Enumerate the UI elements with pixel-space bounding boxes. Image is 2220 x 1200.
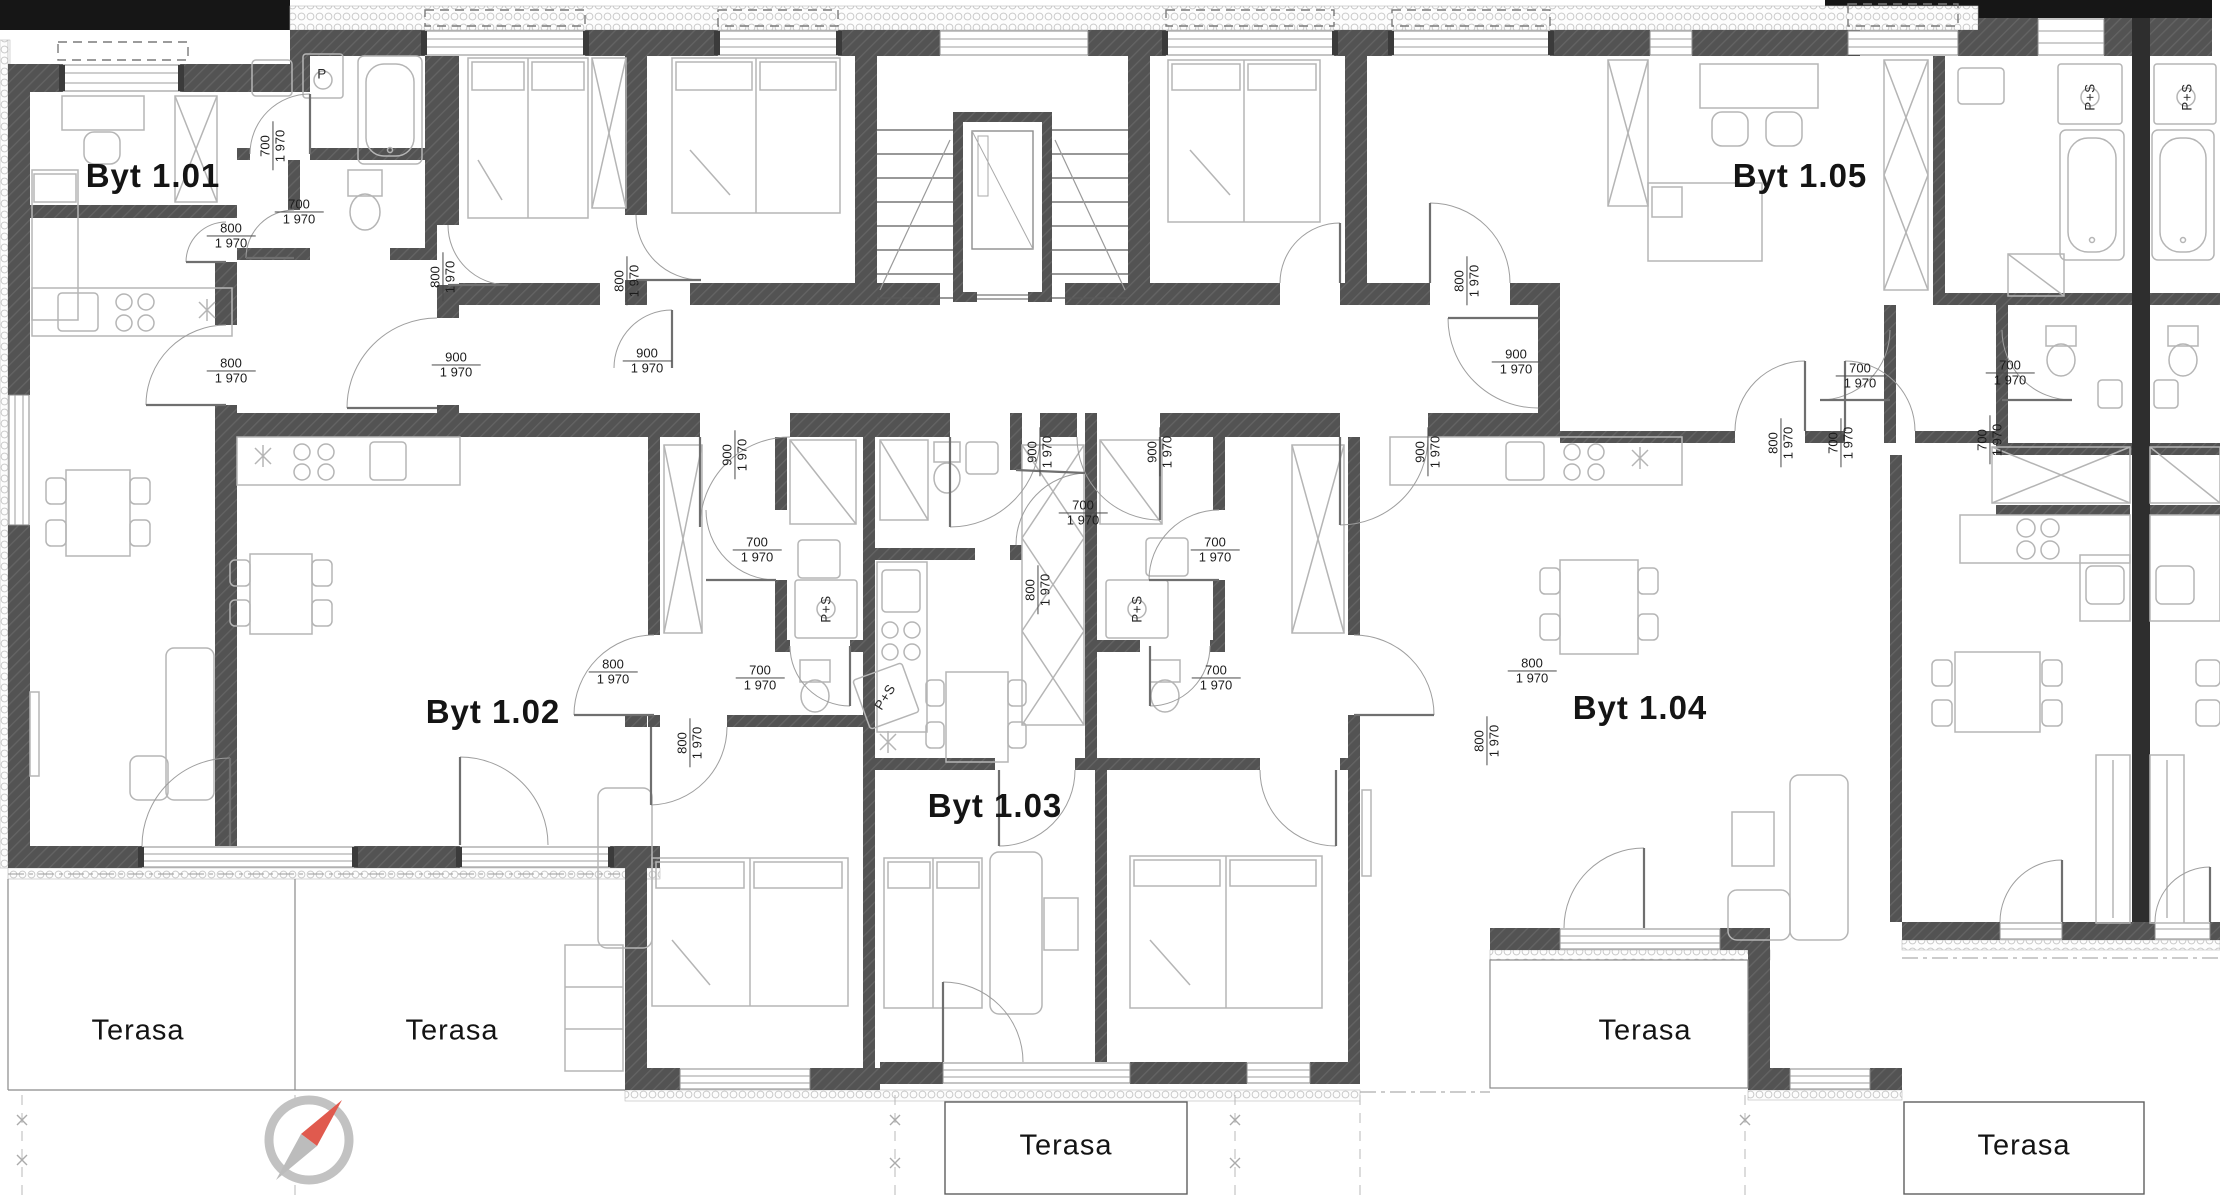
- insulation-layer: [0, 6, 2220, 1101]
- door-dimension-label: 900 1 970: [432, 350, 481, 379]
- coffee-table: [1044, 898, 1078, 950]
- kitchen-sink: [2156, 566, 2194, 604]
- elevator: [953, 112, 1052, 302]
- toilet: [800, 660, 830, 682]
- dining-table: [250, 554, 312, 634]
- office-chair: [1766, 112, 1802, 146]
- sofa: [1790, 775, 1848, 940]
- washbasin: [2098, 380, 2122, 408]
- tv-board: [30, 692, 39, 776]
- terrace-label: Terasa: [1598, 1015, 1691, 1048]
- office-chair: [1712, 112, 1748, 146]
- toilet: [1150, 660, 1180, 682]
- door-dimension-label: 700 1 970: [275, 197, 324, 226]
- desk: [1700, 64, 1818, 108]
- apartment-label: Byt 1.04: [1573, 689, 1708, 727]
- kitchen-sink: [882, 570, 920, 612]
- door-dimension-label: 700 1 970: [736, 663, 785, 692]
- windows: [9, 4, 2210, 1089]
- sofa: [166, 648, 214, 800]
- toilet: [934, 442, 960, 462]
- kitchen-sink: [370, 442, 406, 480]
- washbasin: [2154, 380, 2178, 408]
- door-dimension-label: 700 1 970: [1826, 419, 1855, 468]
- kitchen-sink: [1506, 442, 1544, 480]
- kitchen-counter: [1960, 515, 2130, 563]
- dining-table: [946, 672, 1008, 762]
- door-dimension-label: 800 1 970: [1766, 419, 1795, 468]
- single-bed: [32, 170, 78, 320]
- washbasin: [966, 442, 998, 474]
- door-dimension-label: 700 1 970: [1975, 416, 2004, 465]
- vent-symbol: [199, 299, 215, 321]
- dining-table: [66, 470, 130, 556]
- door-dimension-label: 800 1 970: [1452, 257, 1481, 306]
- door-dimension-label: 900 1 970: [1413, 428, 1442, 477]
- burner: [116, 294, 132, 310]
- dining-table: [1560, 560, 1638, 654]
- appliance-label: P+S: [819, 595, 834, 622]
- appliance-label: P+S: [2180, 83, 2195, 110]
- armchair: [130, 756, 168, 800]
- apartment-label: Byt 1.01: [86, 157, 221, 195]
- washbasin: [798, 540, 840, 578]
- terrace-label: Terasa: [405, 1015, 498, 1048]
- door-dimension-label: 800 1 970: [1472, 717, 1501, 766]
- kitchen-counter: [237, 437, 460, 485]
- door-dimension-label: 700 1 970: [1986, 358, 2035, 387]
- door-dimension-label: 700 1 970: [1191, 535, 1240, 564]
- toilet: [2046, 326, 2076, 346]
- kitchen-counter: [2080, 555, 2130, 621]
- apartment-label: Byt 1.05: [1733, 157, 1868, 195]
- door-dimension-label: 800 1 970: [1508, 656, 1557, 685]
- shelf-unit: [565, 945, 623, 1071]
- door-dimension-label: 700 1 970: [258, 122, 287, 171]
- door-dimension-label: 800 1 970: [1023, 566, 1052, 615]
- tv-board: [1362, 790, 1371, 876]
- door-dimension-label: 800 1 970: [589, 657, 638, 686]
- sofa: [990, 852, 1042, 1014]
- appliance-label: P+S: [1130, 595, 1145, 622]
- apartment-label: Byt 1.03: [928, 787, 1063, 825]
- toilet: [2168, 326, 2198, 346]
- door-dimension-label: 700 1 970: [1192, 663, 1241, 692]
- door-dimension-label: 800 1 970: [428, 253, 457, 302]
- door-dimension-label: 900 1 970: [1492, 347, 1541, 376]
- terrace-label: Terasa: [1019, 1130, 1112, 1163]
- apartment-label: Byt 1.02: [426, 693, 561, 731]
- door-dimension-label: 900 1 970: [720, 431, 749, 480]
- door-dimension-label: 900 1 970: [1025, 428, 1054, 477]
- desk: [62, 96, 144, 130]
- wardrobe: [1884, 60, 1928, 290]
- door-dimension-label: 800 1 970: [207, 356, 256, 385]
- washbasin: [1958, 68, 2004, 104]
- appliance-label: P: [317, 67, 327, 82]
- door-dimension-label: 800 1 970: [207, 221, 256, 250]
- terrace-label: Terasa: [91, 1015, 184, 1048]
- compass-icon: [269, 1100, 349, 1180]
- coffee-table: [1732, 812, 1774, 866]
- party-wall: [2132, 18, 2150, 922]
- staircase: [877, 130, 1128, 298]
- terrace-label: Terasa: [1977, 1130, 2070, 1163]
- appliance-label: P+S: [2083, 83, 2098, 110]
- floor-plan-drawing: [0, 0, 2220, 1200]
- door-dimension-label: 700 1 970: [1836, 361, 1885, 390]
- toilet: [348, 170, 382, 196]
- door-dimension-label: 700 1 970: [1059, 498, 1108, 527]
- floor-plan: Byt 1.01 Byt 1.02 Byt 1.03 Byt 1.04 Byt …: [0, 0, 2220, 1200]
- dining-table: [1955, 652, 2040, 732]
- door-dimension-label: 800 1 970: [612, 257, 641, 306]
- door-dimension-label: 800 1 970: [675, 719, 704, 768]
- kitchen-sink: [2086, 566, 2124, 604]
- door-dimension-label: 900 1 970: [1145, 428, 1174, 477]
- door-dimension-label: 700 1 970: [733, 535, 782, 564]
- door-dimension-label: 900 1 970: [623, 346, 672, 375]
- kitchen-counter: [2150, 515, 2220, 621]
- walls: [8, 18, 2220, 1090]
